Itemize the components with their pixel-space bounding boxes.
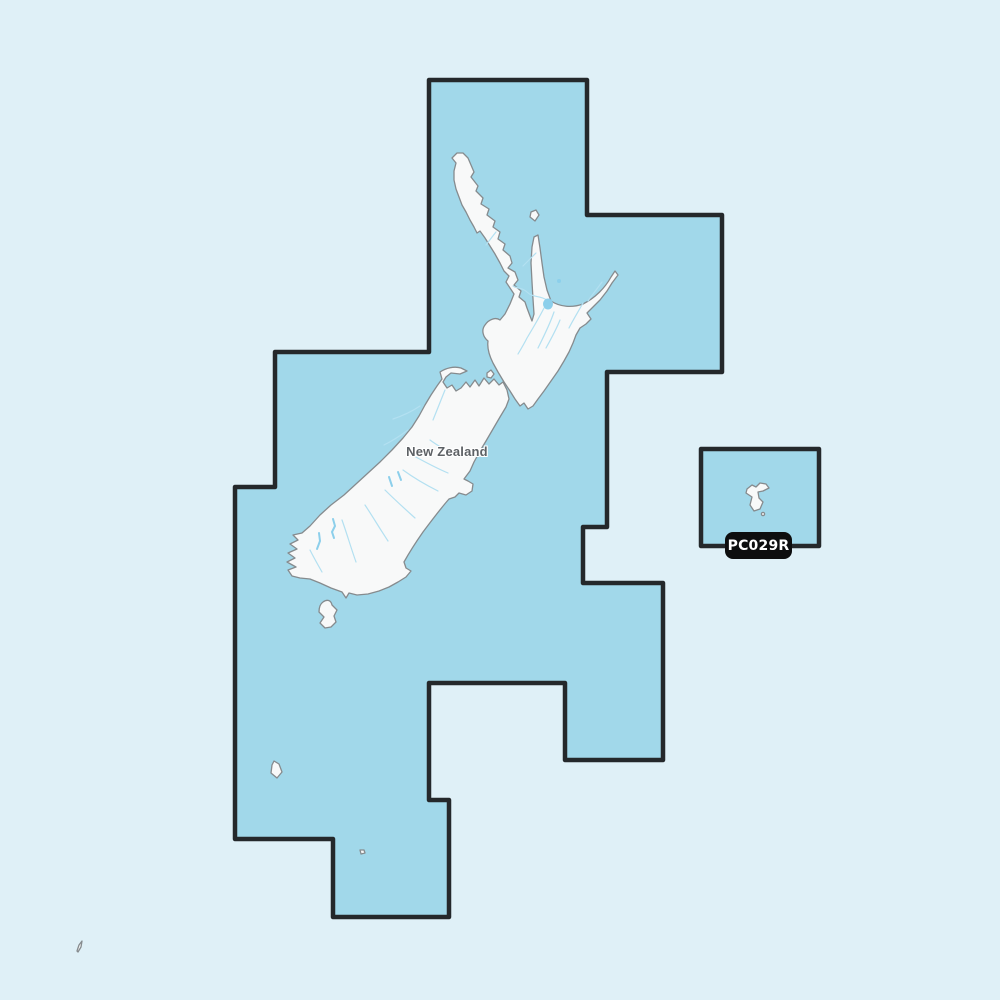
- lake-taupo: [543, 299, 553, 310]
- coverage-map-svg: [0, 0, 1000, 1000]
- country-label: New Zealand: [397, 444, 497, 459]
- coverage-map-canvas: New Zealand PC029R: [0, 0, 1000, 1000]
- small-islet-south: [360, 850, 365, 854]
- solander-islet-outside: [77, 941, 82, 952]
- lake-rotorua: [557, 279, 561, 283]
- chatham-islet: [761, 512, 764, 515]
- region-code-badge[interactable]: PC029R: [725, 532, 792, 559]
